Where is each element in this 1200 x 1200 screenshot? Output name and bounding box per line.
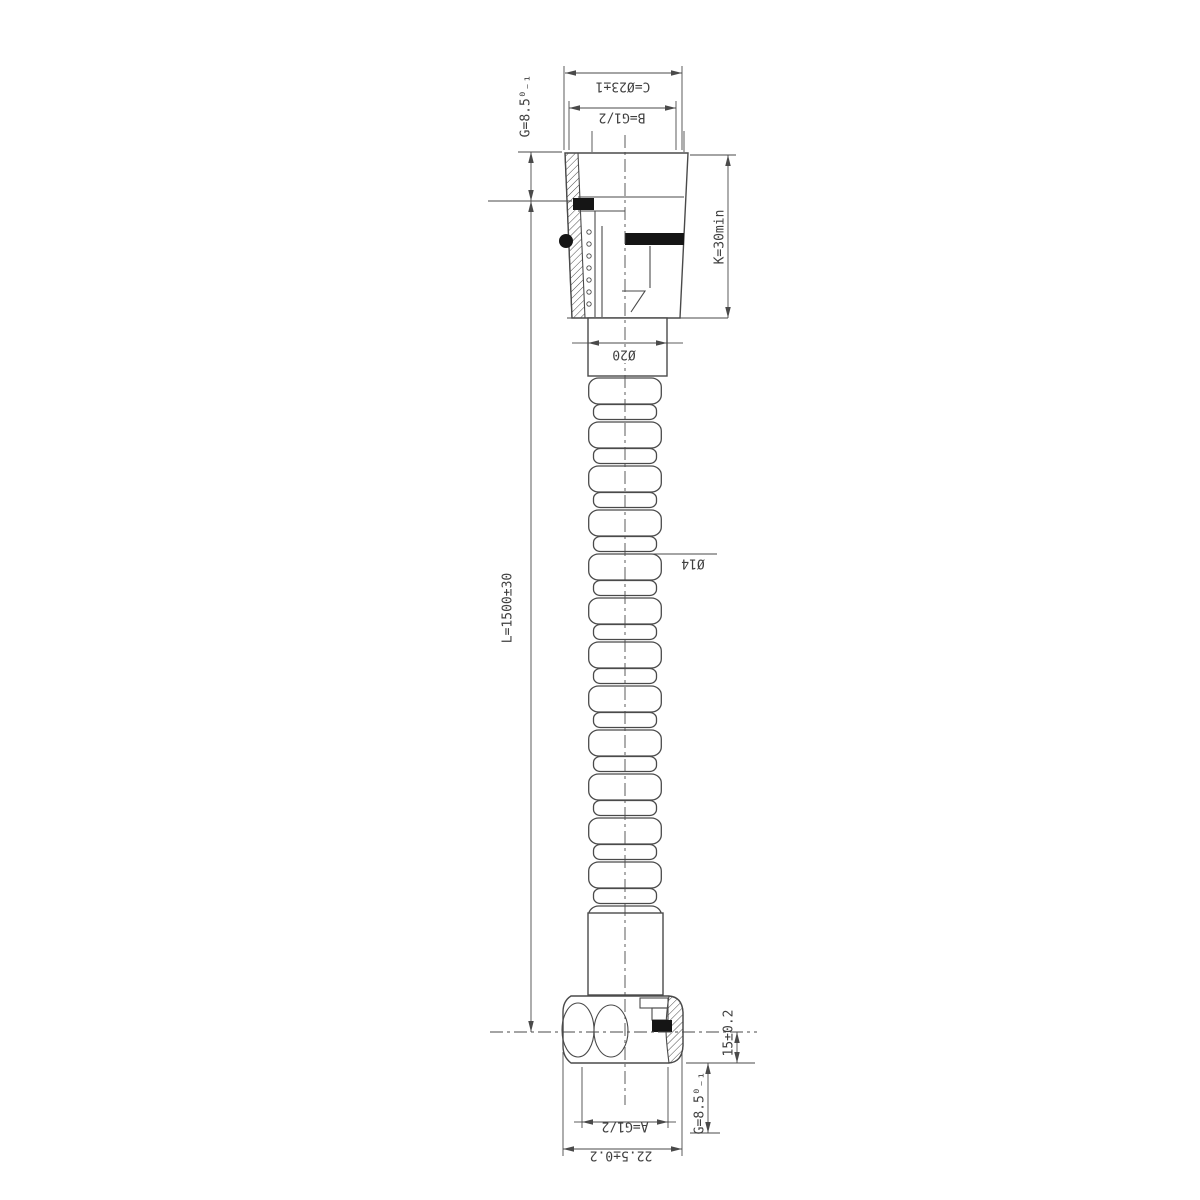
technical-drawing: C=Ø23±1 B=G1/2 G=8.5⁰₋₁ K=30min Ø20 Ø14 … [0,0,1200,1200]
bottom-ferrule [588,913,663,995]
seal-washer-left [573,198,594,210]
drawing-page: { "drawing": { "type": "technical-drawin… [0,0,1200,1200]
seal-washer-right [625,233,684,245]
label-length: L=1500±30 [501,573,516,643]
label-nut-width: 22.5±0.2 [590,1147,653,1162]
hose-neck [567,318,728,376]
o-ring-section [559,234,573,248]
seal-washer-bottom [652,1020,672,1032]
label-hose-dia: Ø14 [681,555,705,570]
label-g-top: G=8.5⁰₋₁ [519,75,534,138]
label-c-dia: C=Ø23±1 [596,78,651,93]
label-b-thread: B=G1/2 [599,109,646,124]
label-offset15: 15±0.2 [722,1010,737,1057]
label-a-thread: A=G1/2 [602,1118,649,1133]
bottom-nut [562,996,683,1063]
label-g-bottom: G=8.5⁰₋₁ [693,1072,708,1135]
top-connector [559,131,688,318]
label-neck-dia: Ø20 [612,346,635,361]
label-k-height: K=30min [713,210,728,265]
